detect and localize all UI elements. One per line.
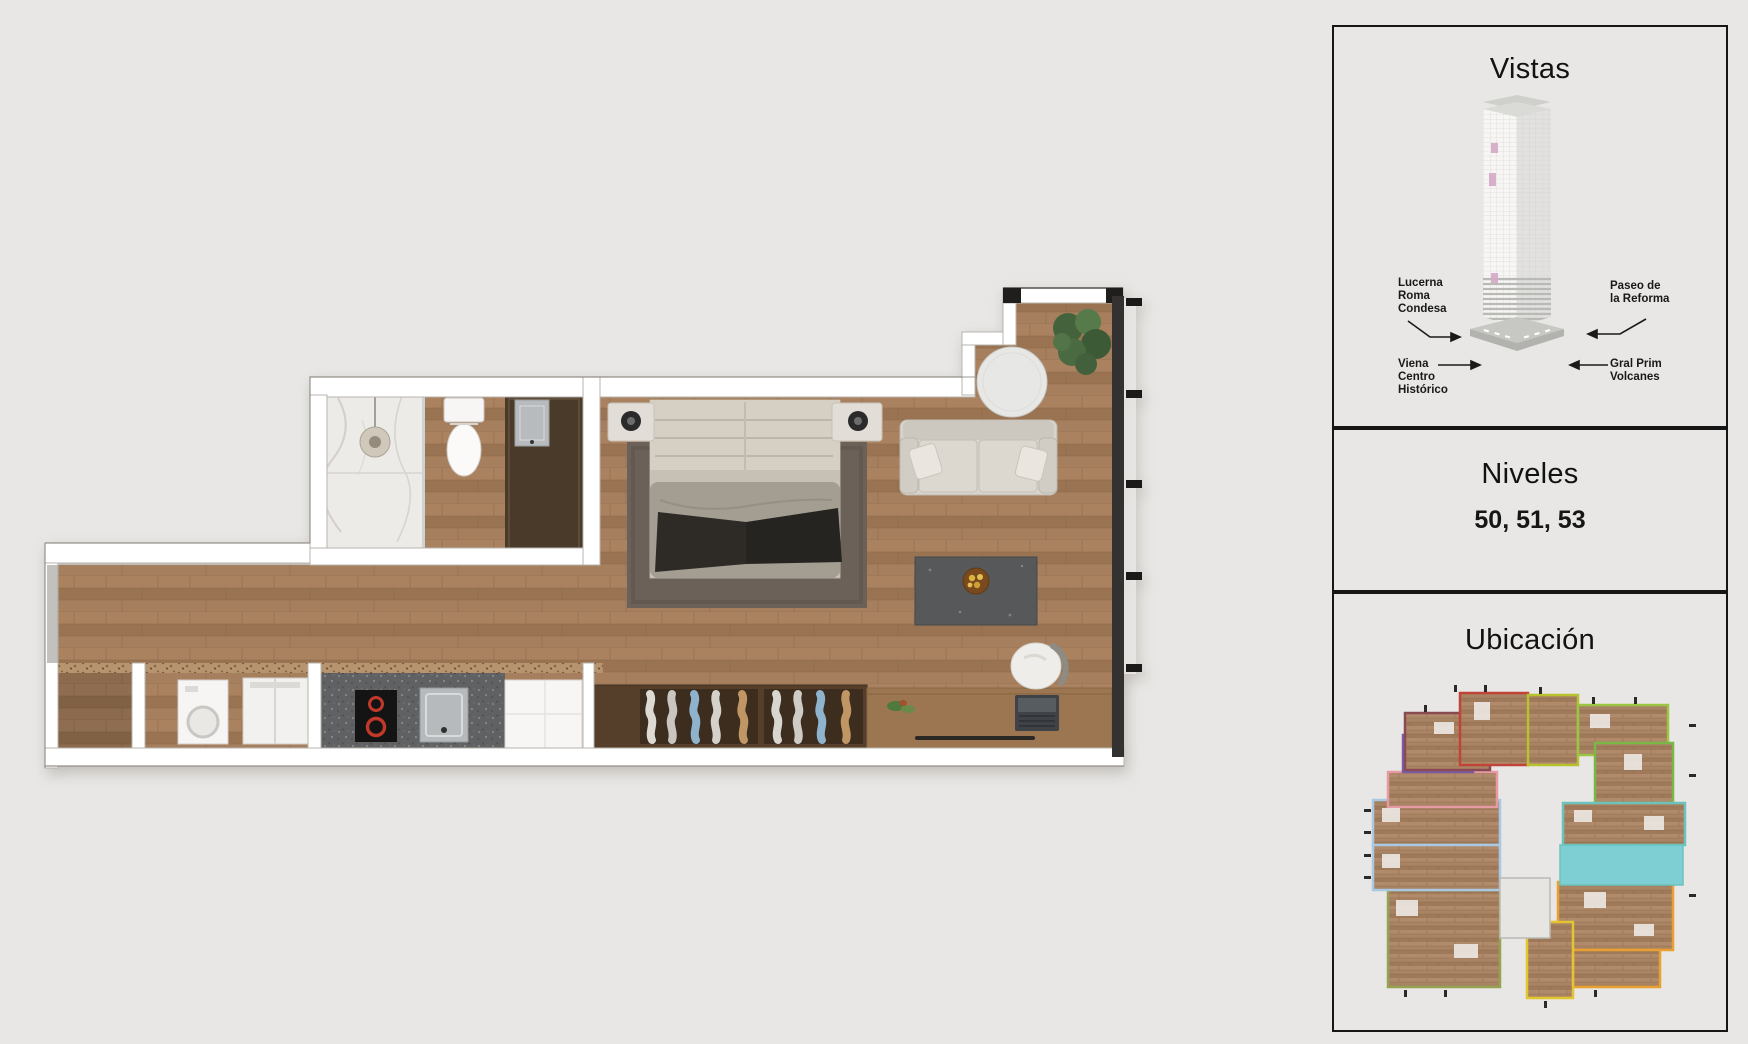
kitchen-island xyxy=(505,680,582,748)
desk-tray xyxy=(915,736,1035,740)
bed-throw xyxy=(655,512,746,572)
cooktop xyxy=(355,690,397,742)
round-side-table xyxy=(977,347,1047,417)
gold-bowl xyxy=(963,568,989,594)
panel-ubicacion: Ubicación xyxy=(1332,592,1728,1032)
coffee-table xyxy=(915,557,1037,625)
bathroom-right-wall xyxy=(583,377,600,565)
bed xyxy=(650,400,842,578)
vistas-title: Vistas xyxy=(1334,53,1726,86)
hall-top-wall xyxy=(45,543,310,563)
kitchen-post-2 xyxy=(308,663,321,748)
tower-illustration xyxy=(1334,27,1726,426)
view-label-paseo: Paseo de la Reforma xyxy=(1610,280,1669,306)
niveles-values: 50, 51, 53 xyxy=(1334,506,1726,535)
kitchen-post-1 xyxy=(132,663,145,748)
unit-green xyxy=(1595,743,1673,803)
niveles-title: Niveles xyxy=(1334,458,1726,491)
unit-teal xyxy=(1563,803,1685,845)
washer xyxy=(178,680,228,744)
unit-orange-2 xyxy=(1573,950,1660,987)
view-label-viena: Viena Centro Histórico xyxy=(1398,358,1448,397)
laptop xyxy=(1015,695,1059,731)
granite-counter xyxy=(321,673,505,748)
shower-glass xyxy=(422,395,425,548)
view-label-lucerna: Lucerna Roma Condesa xyxy=(1398,277,1447,316)
unit-chartreuse xyxy=(1528,695,1578,765)
laundry-cell-floor xyxy=(58,673,132,748)
page: { "page": { "background": "#e8e7e5", "ac… xyxy=(0,0,1748,1044)
bathroom-vanity xyxy=(505,395,583,560)
toilet xyxy=(444,398,484,476)
panel-vistas: Vistas Lucerna Roma Condesa Paseo de la … xyxy=(1332,25,1728,428)
bottom-wall xyxy=(45,748,1124,766)
closet xyxy=(594,685,867,748)
left-wall-concrete xyxy=(47,565,58,663)
unit-red xyxy=(1460,693,1528,765)
building-core xyxy=(1500,878,1550,938)
balcony-wall xyxy=(1112,296,1124,757)
top-wall xyxy=(310,377,975,397)
hallway-floor xyxy=(58,565,600,663)
nightstand-left xyxy=(608,403,654,441)
highlighted-unit xyxy=(1560,845,1683,885)
refrigerator xyxy=(243,678,308,744)
bathroom-marble-floor xyxy=(327,395,425,548)
panel-niveles: Niveles 50, 51, 53 xyxy=(1332,428,1728,592)
floorplate-diagram xyxy=(1334,594,1726,1030)
sofa xyxy=(900,420,1057,495)
nightstand-right xyxy=(832,403,882,441)
bathroom-bottom-wall xyxy=(310,548,600,565)
kitchen-post-3 xyxy=(583,663,594,748)
unit-orange-1 xyxy=(1558,882,1673,950)
kitchen-sink xyxy=(420,688,468,742)
bathroom-left-wall xyxy=(310,395,327,565)
unit-pink xyxy=(1388,772,1497,807)
view-label-gral-prim: Gral Prim Volcanes xyxy=(1610,358,1662,384)
bedroom xyxy=(608,400,882,608)
